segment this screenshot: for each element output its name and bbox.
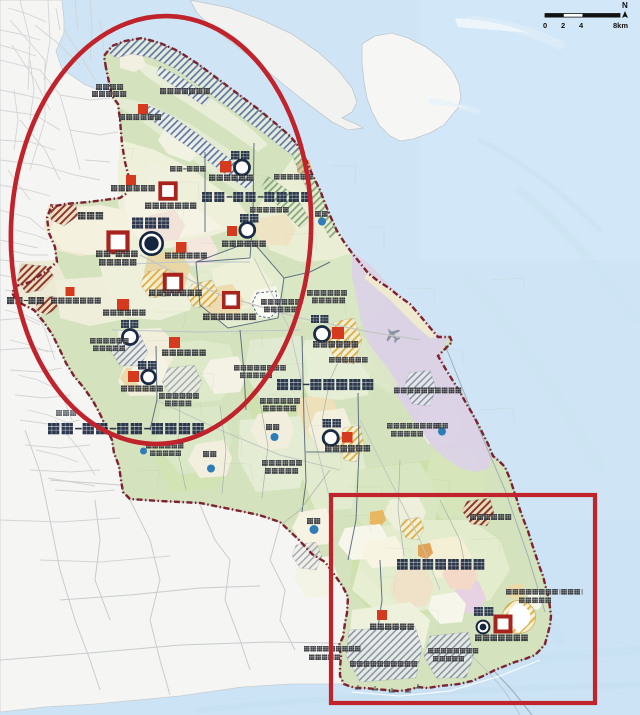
svg-text:2: 2 [561,21,565,30]
svg-text:N: N [622,1,628,10]
svg-text:0: 0 [543,21,547,30]
svg-text:8km: 8km [613,21,628,30]
